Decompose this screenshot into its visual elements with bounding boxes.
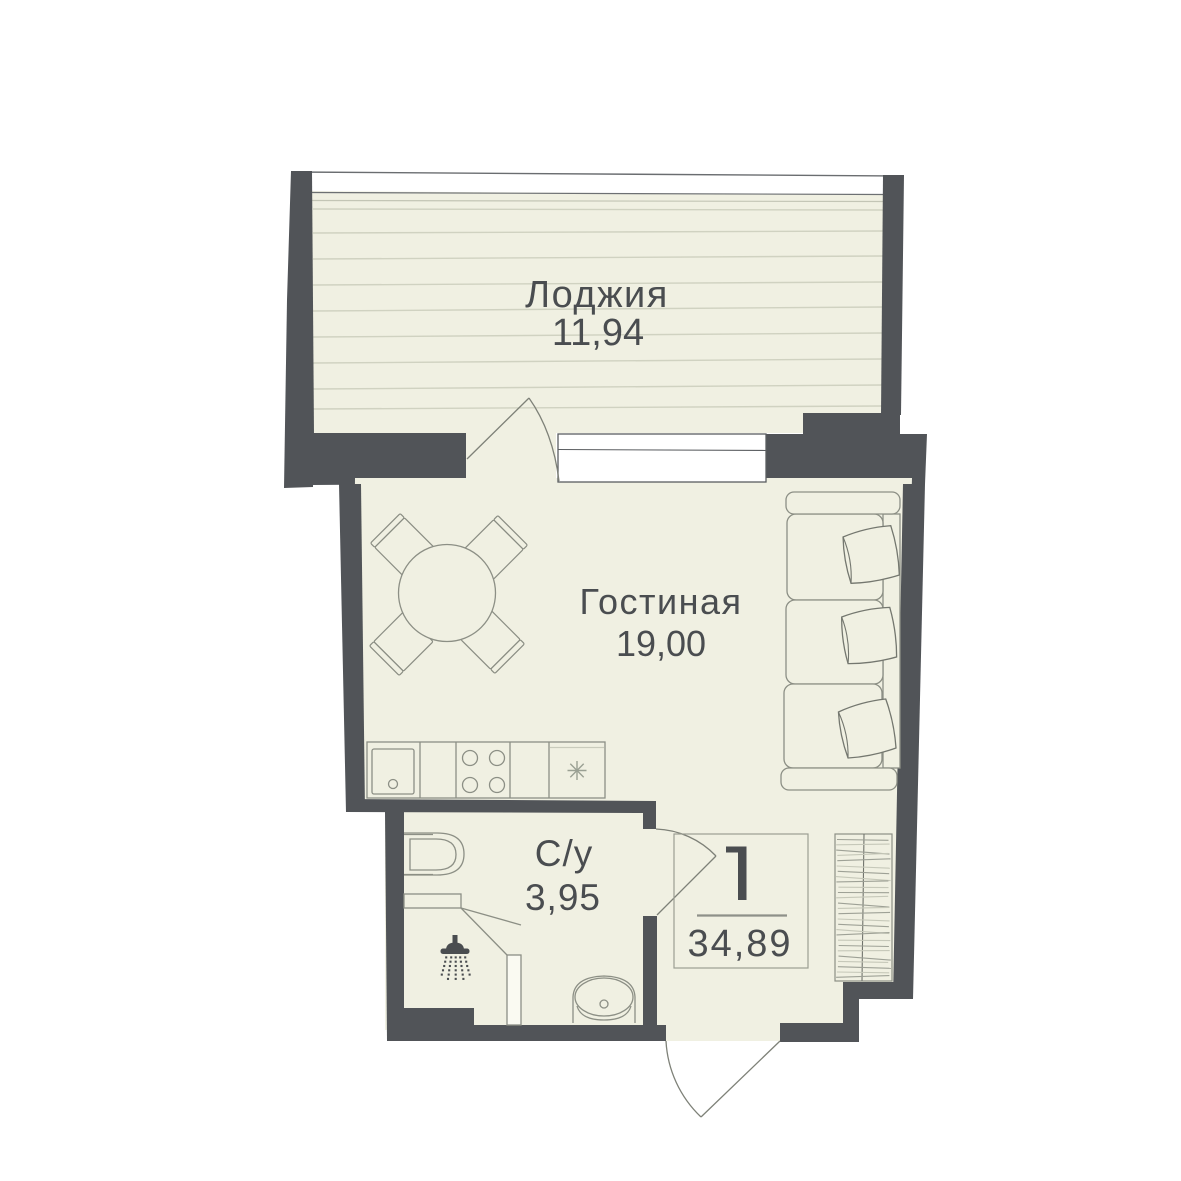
- svg-text:С/у: С/у: [535, 833, 594, 874]
- svg-text:Лоджия: Лоджия: [525, 274, 669, 316]
- svg-text:3,95: 3,95: [525, 877, 601, 918]
- svg-text:34,89: 34,89: [687, 923, 792, 965]
- svg-text:Гостиная: Гостиная: [579, 581, 742, 622]
- svg-text:19,00: 19,00: [616, 623, 706, 664]
- svg-text:11,94: 11,94: [552, 312, 644, 354]
